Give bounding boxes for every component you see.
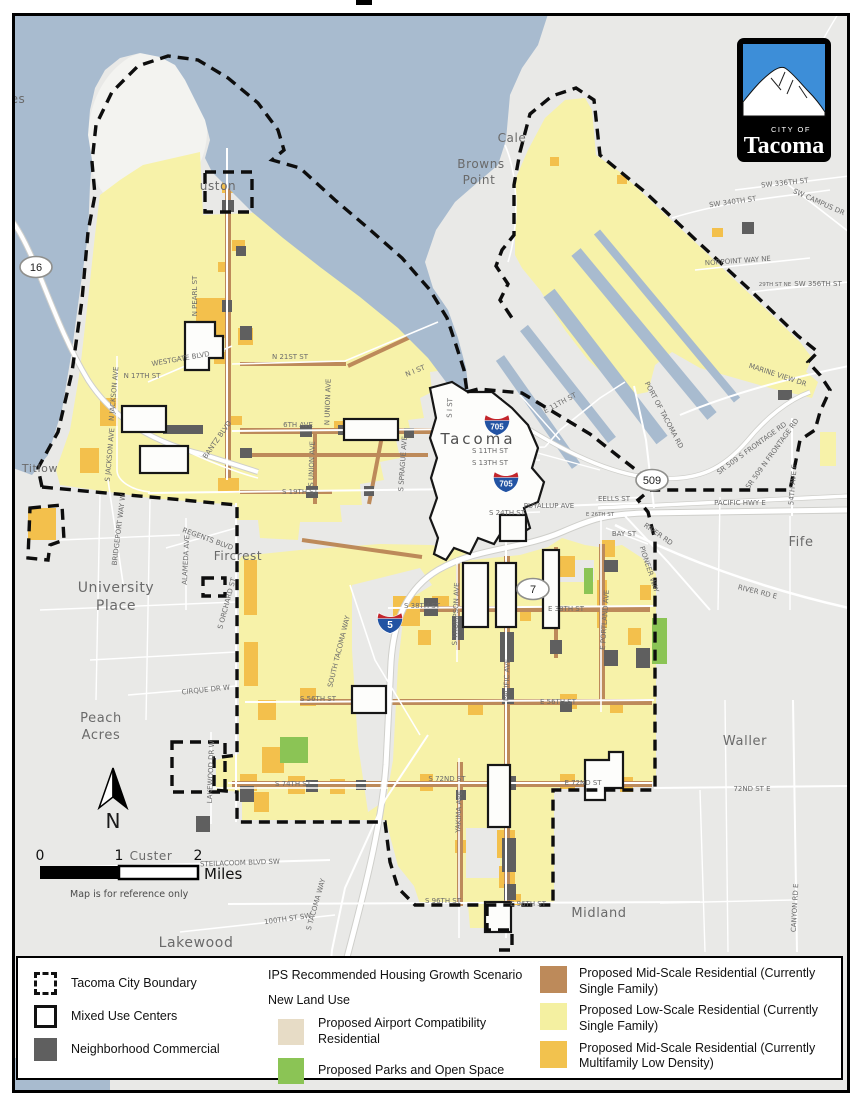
place-label: Place	[96, 598, 136, 614]
street-label: S I ST	[446, 397, 455, 418]
svg-text:16: 16	[30, 262, 42, 274]
legend-item-label: Proposed Mid-Scale Residential (Currentl…	[579, 966, 833, 997]
place-label: Titlow	[21, 462, 58, 475]
legend-right-column: Proposed Mid-Scale Residential (Currentl…	[540, 958, 841, 1078]
svg-text:509: 509	[643, 475, 661, 487]
place-label: Waller	[723, 734, 767, 749]
place-label: Adelaide	[788, 5, 845, 19]
place-label: Lakewood	[159, 935, 234, 951]
color-swatch	[540, 966, 567, 993]
legend-item: Proposed Low-Scale Residential (Currentl…	[540, 1003, 833, 1034]
legend-subtitle: New Land Use	[268, 993, 540, 1009]
state-route-shield-icon: 7	[517, 579, 549, 600]
legend-item: Proposed Mid-Scale Residential (Currentl…	[540, 1041, 833, 1072]
outline-swatch	[34, 1005, 57, 1028]
street-label: S 24TH ST	[489, 509, 526, 517]
street-label: E 38TH ST	[548, 605, 585, 613]
color-swatch	[540, 1003, 567, 1030]
city-label: Tacoma	[439, 430, 515, 448]
page-artifact	[356, 0, 372, 5]
dashed-swatch	[34, 972, 57, 995]
street-label: 72ND ST E	[733, 785, 770, 793]
place-label: Custer	[130, 849, 173, 863]
street-label: S 13TH ST	[472, 459, 509, 467]
svg-text:7: 7	[530, 584, 536, 596]
street-label: PACIFIC AVE	[502, 659, 511, 701]
street-label: E 26TH ST	[586, 512, 615, 518]
legend-item-label: Proposed Airport Compatibility Residenti…	[318, 1016, 540, 1047]
north-label: N	[106, 809, 121, 833]
place-label: Acres	[82, 728, 121, 743]
map-page: N 0 1 2 Miles Map is for reference only …	[0, 0, 862, 1115]
legend-left-column: Tacoma City BoundaryMixed Use CentersNei…	[18, 958, 268, 1078]
svg-text:705: 705	[499, 480, 513, 489]
place-label: Fircrest	[214, 549, 262, 563]
legend-item-label: Proposed Low-Scale Residential (Currentl…	[579, 1003, 833, 1034]
place-label: Midland	[571, 906, 626, 921]
street-label: S 38TH ST	[404, 602, 441, 610]
place-label: Cale	[498, 131, 527, 145]
legend-item: Mixed Use Centers	[34, 1005, 268, 1028]
legend: Tacoma City BoundaryMixed Use CentersNei…	[16, 956, 843, 1080]
legend-title: IPS Recommended Housing Growth Scenario	[268, 968, 540, 984]
scale-note: Map is for reference only	[70, 889, 189, 900]
street-label: PUYALLUP AVE	[524, 502, 574, 510]
street-label: SW 356TH ST	[794, 280, 842, 288]
color-swatch	[278, 1019, 304, 1045]
svg-text:5: 5	[387, 620, 393, 631]
street-label: S 72ND ST	[428, 775, 466, 783]
legend-item: Neighborhood Commercial	[34, 1038, 268, 1061]
street-label: N 17TH ST	[124, 372, 162, 380]
place-label: Point	[463, 173, 496, 187]
legend-item-label: Proposed Parks and Open Space	[318, 1063, 504, 1079]
street-label: PACIFIC HWY E	[714, 499, 766, 507]
street-label: N UNION AVE	[323, 379, 333, 426]
legend-item: Proposed Airport Compatibility Residenti…	[268, 1016, 540, 1047]
legend-item-label: Tacoma City Boundary	[71, 976, 197, 992]
street-label: N PEARL ST	[191, 275, 199, 316]
color-swatch	[540, 1041, 567, 1068]
map-canvas: N 0 1 2 Miles Map is for reference only …	[0, 0, 862, 1115]
logo-name: Tacoma	[744, 133, 824, 159]
legend-item-label: Neighborhood Commercial	[71, 1042, 220, 1058]
place-label: Peach	[80, 711, 122, 726]
street-label: S 56TH ST	[300, 695, 337, 703]
scale-tick-0: 0	[36, 848, 45, 864]
place-label: uston	[200, 179, 237, 193]
street-label: BAY ST	[612, 530, 637, 538]
city-of-tacoma-logo: CITY OF Tacoma	[737, 38, 831, 162]
state-route-shield-icon: 16	[20, 257, 52, 278]
street-label: N 21ST ST	[272, 353, 309, 361]
street-label: YAKIMA AVE	[454, 791, 463, 834]
state-route-shield-icon: 509	[636, 470, 668, 491]
place-label: Fife	[788, 535, 813, 550]
street-label: S 74TH ST	[275, 780, 312, 788]
street-label: S 96TH ST	[425, 897, 462, 905]
place-label: Browns	[457, 157, 505, 171]
street-label: 29TH ST NE	[759, 282, 792, 288]
place-label: University	[78, 580, 155, 596]
street-label: S 11TH ST	[472, 447, 509, 455]
street-label: S 19TH ST	[282, 488, 319, 496]
street-label: E 96TH ST	[510, 900, 547, 908]
street-label: 6TH AVE	[283, 421, 313, 429]
scale-tick-1: 1	[115, 848, 124, 864]
street-label: E 56TH ST	[540, 698, 577, 706]
street-label: E 72ND ST	[564, 779, 602, 787]
legend-item-label: Proposed Mid-Scale Residential (Currentl…	[579, 1041, 833, 1072]
legend-item-label: Mixed Use Centers	[71, 1009, 177, 1025]
fill-swatch	[34, 1038, 57, 1061]
legend-middle-column: IPS Recommended Housing Growth Scenario …	[268, 958, 540, 1078]
street-label: S UNION AVE	[307, 441, 317, 487]
street-label: EELLS ST	[598, 495, 631, 503]
legend-item: Tacoma City Boundary	[34, 972, 268, 995]
legend-item: Proposed Parks and Open Space	[268, 1058, 540, 1084]
legend-item: Proposed Mid-Scale Residential (Currentl…	[540, 966, 833, 997]
color-swatch	[278, 1058, 304, 1084]
